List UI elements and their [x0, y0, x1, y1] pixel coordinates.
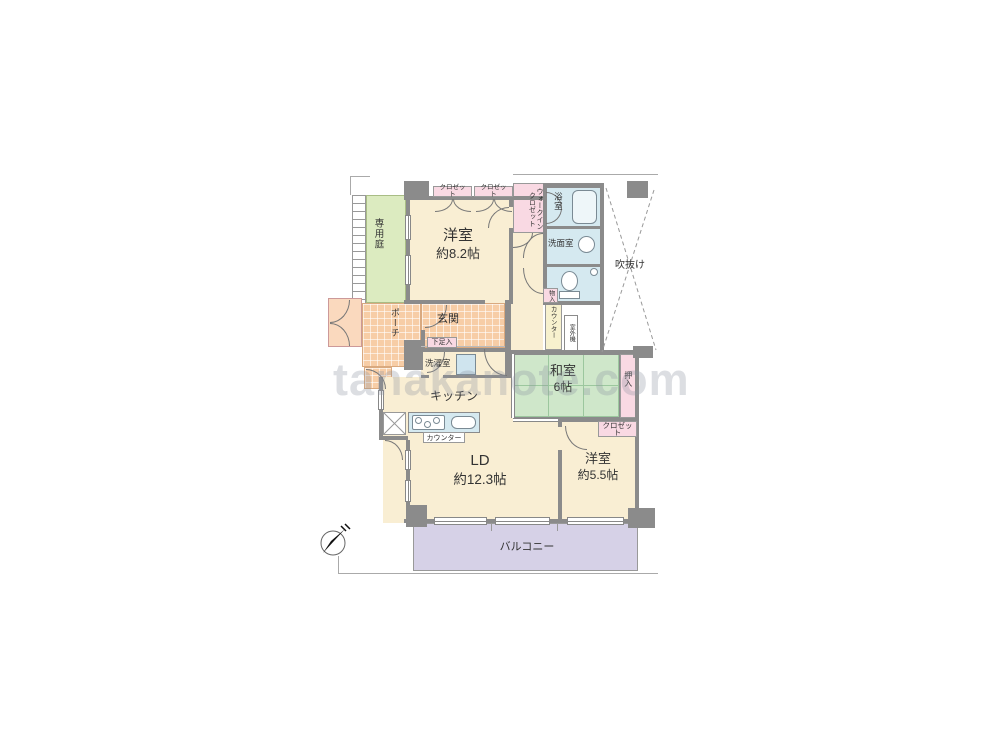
shoe-cabinet-label: 下足入	[432, 339, 453, 346]
kitchen-counter-label: カウンター	[427, 433, 462, 443]
stove-burner	[424, 421, 431, 428]
garden-label: 専用庭	[372, 218, 382, 250]
storage-label: 物入	[547, 290, 554, 302]
hallway-area	[509, 300, 543, 354]
wall-segment	[624, 519, 637, 523]
walkin-closet-label: ウォークインクロゼット	[516, 187, 543, 231]
bedroom2-name: 洋室	[578, 452, 619, 467]
bedroom1-size: 約8.2帖	[436, 247, 480, 262]
refrigerator-space	[383, 412, 406, 435]
entrance-label: 玄関	[437, 313, 459, 326]
shoe-cabinet-tag: 下足入	[427, 337, 457, 348]
outdoor-unit-box: 室外機	[564, 315, 578, 351]
closet-label: クロゼット	[440, 185, 466, 198]
wall-segment	[628, 508, 655, 528]
toilet-paper-holder	[590, 268, 598, 276]
closet-tag: クロゼット	[474, 186, 513, 197]
wall-segment	[406, 285, 410, 302]
closet-tag: クロゼット	[433, 186, 472, 197]
outdoor-unit-label: 室外機	[568, 324, 575, 342]
wall-segment	[406, 240, 410, 255]
wall-segment	[404, 300, 485, 304]
compass-icon	[314, 521, 356, 563]
wall-segment	[406, 502, 410, 521]
wall-segment	[406, 197, 410, 215]
window	[405, 215, 411, 240]
living-size: 約12.3帖	[453, 472, 506, 488]
balcony-label: バルコニー	[500, 541, 555, 554]
garden-fence	[352, 195, 366, 303]
washbasin	[578, 236, 595, 253]
bedroom1-label: 洋室 約8.2帖	[436, 227, 480, 262]
toilet-tank	[559, 291, 580, 299]
balcony-divider	[557, 523, 558, 531]
stove-burner	[415, 417, 422, 424]
living-label: LD 約12.3帖	[453, 452, 506, 488]
watermark: tanakanote.com	[333, 354, 690, 406]
outline-line	[350, 176, 370, 177]
wall-segment	[406, 470, 410, 480]
wall-segment	[545, 264, 604, 267]
wall-segment	[545, 183, 604, 188]
sliding-door	[513, 418, 558, 422]
toilet-bowl	[561, 271, 578, 291]
outline-line	[350, 176, 351, 195]
closet-label: クロゼット	[481, 185, 507, 198]
wall-segment	[558, 422, 562, 427]
bedroom2-label: 洋室 約5.5帖	[578, 452, 619, 483]
bedroom2-size: 約5.5帖	[578, 469, 619, 483]
living-name: LD	[453, 452, 506, 469]
kitchen-sink	[451, 416, 476, 429]
bathtub	[572, 190, 597, 224]
outline-line	[513, 174, 658, 175]
window	[495, 517, 550, 525]
storage-box: 物入	[543, 288, 558, 303]
void-label: 吹抜け	[615, 260, 645, 272]
closet-tag: クロゼット	[598, 421, 637, 437]
wall-segment	[545, 226, 604, 229]
hall-counter-label: カウンター	[549, 306, 556, 339]
window	[405, 480, 411, 502]
wall-segment	[379, 436, 408, 440]
window	[405, 450, 411, 470]
balcony-divider	[491, 523, 492, 531]
window	[434, 517, 487, 525]
stove-burner	[433, 417, 440, 424]
kitchen-counter-tag: カウンター	[423, 432, 465, 443]
outline-line	[338, 573, 658, 574]
window	[567, 517, 624, 525]
window	[405, 255, 411, 285]
floorplan-canvas: 室外機 物入 クロゼット クロゼット ウォークインクロゼット クロゼット 下足入…	[0, 0, 1000, 750]
wall-segment	[558, 450, 562, 521]
wall-segment	[406, 440, 410, 450]
porch-label: ポーチ	[389, 308, 399, 338]
closet-label: クロゼット	[599, 422, 636, 437]
washroom-label: 洗面室	[548, 239, 574, 249]
bathroom-label: 浴室	[553, 192, 562, 211]
bedroom1-name: 洋室	[436, 227, 480, 244]
